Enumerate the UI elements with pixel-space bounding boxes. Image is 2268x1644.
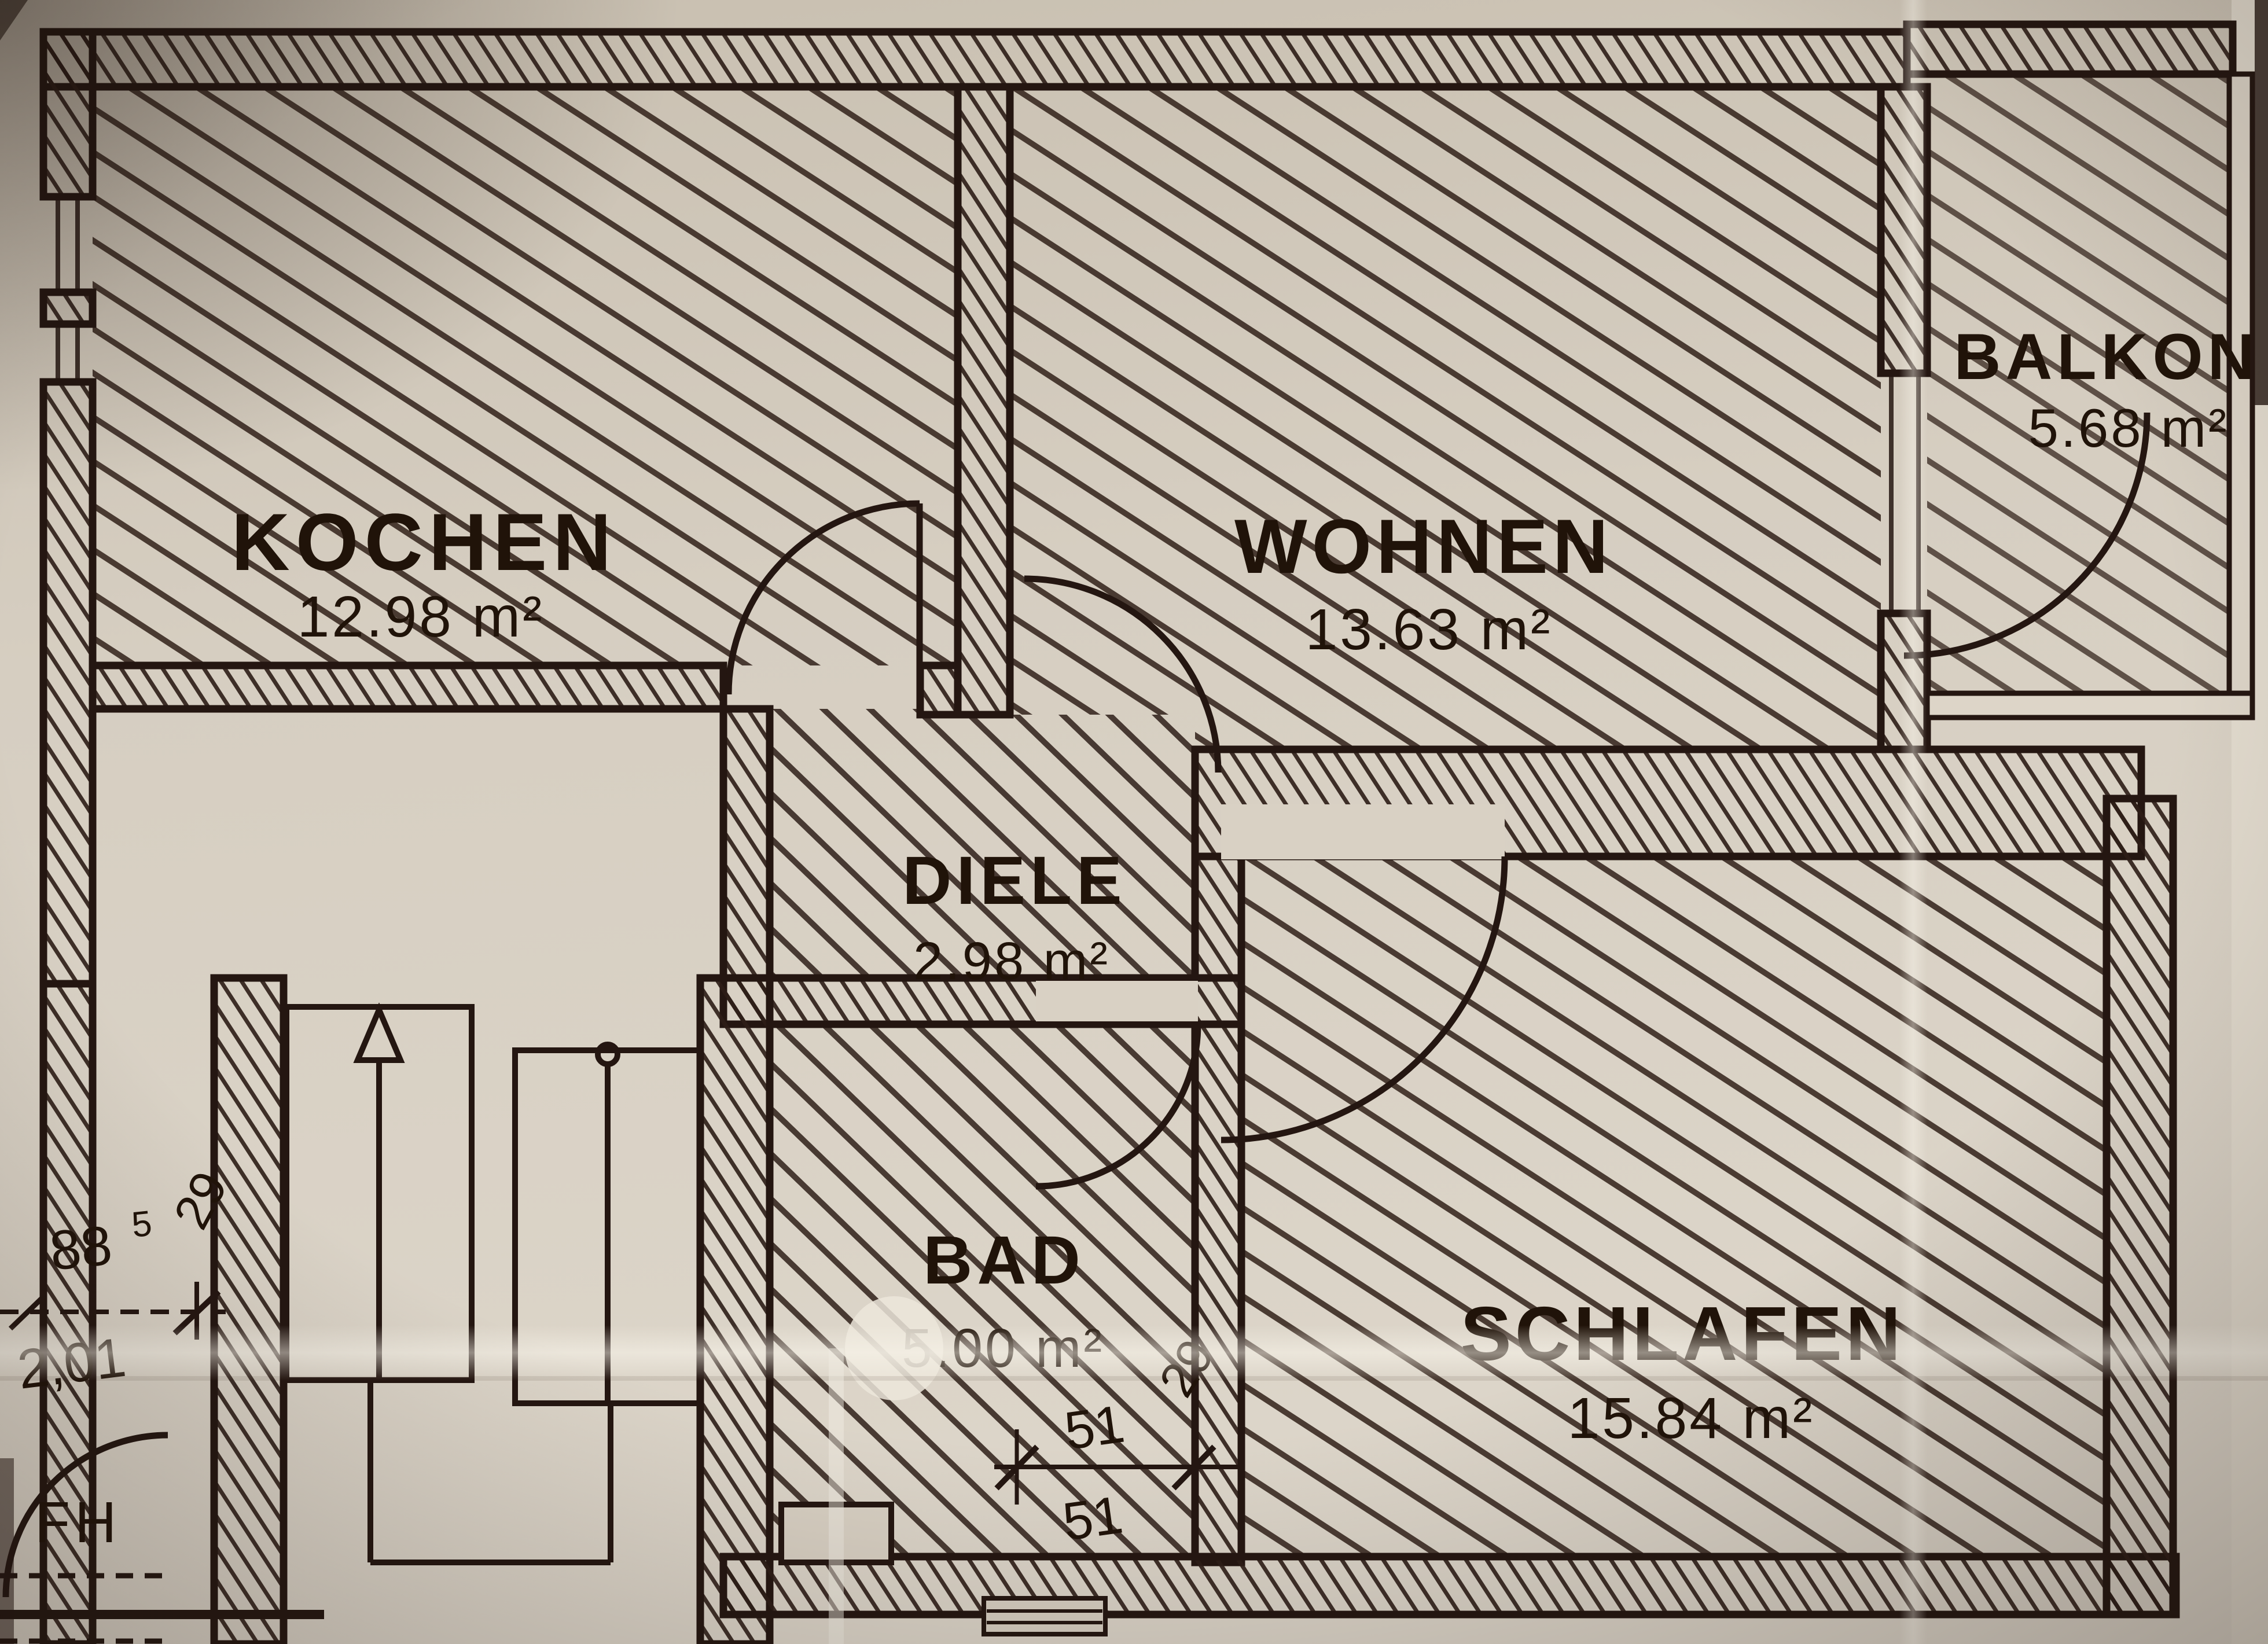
floorplan-photo: 88 5 2,01 29 FH 51 29 51 KOCHEN 12.98 m²… [0,0,2268,1644]
floorplan-svg: 88 5 2,01 29 FH 51 29 51 KOCHEN 12.98 m²… [0,0,2268,1644]
photo-artifacts [0,0,2268,1644]
vignette [0,0,2268,1644]
